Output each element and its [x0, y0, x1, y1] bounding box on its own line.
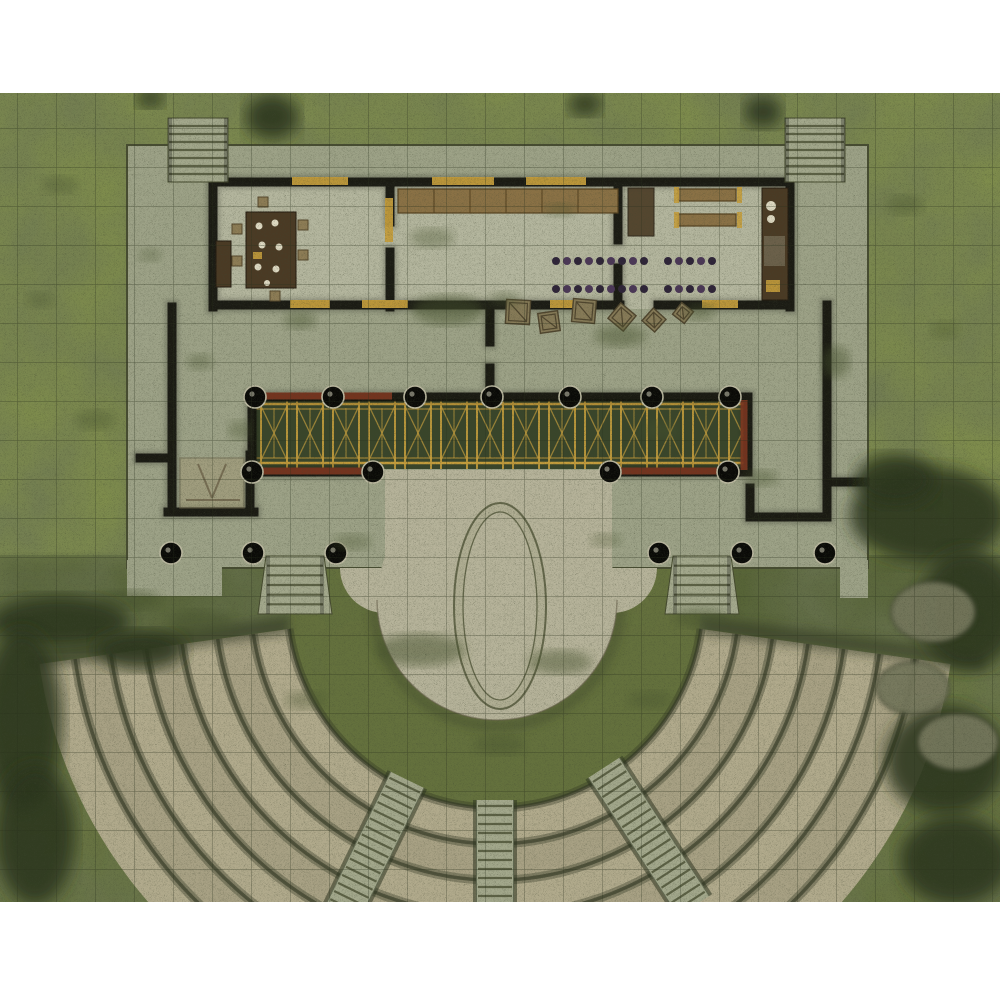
top-white-margin: [0, 0, 1000, 93]
battle-map: [0, 0, 1000, 1000]
noise-texture: [0, 93, 1000, 902]
bottom-white-margin: [0, 902, 1000, 1000]
battle-map-page: [0, 0, 1000, 1000]
map-image: [0, 88, 1000, 1000]
